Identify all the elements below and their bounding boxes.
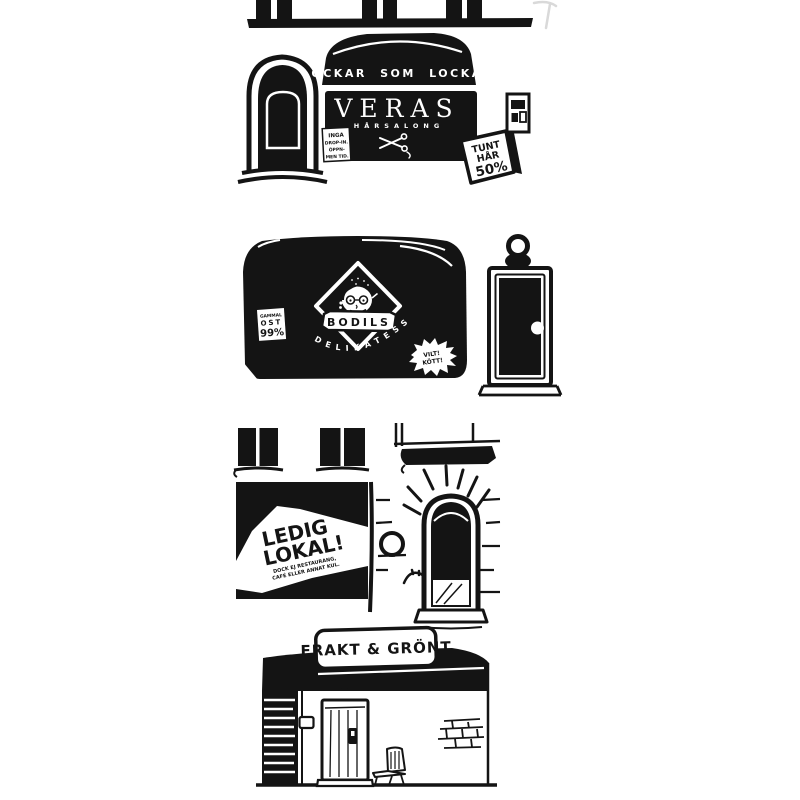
upper-window <box>234 428 283 477</box>
storefronts-illustration: LOCKAR SOM LOCKAR VERAS HÅRSALONG INGA D… <box>0 0 800 800</box>
chair <box>373 748 405 786</box>
door-lamp-icon <box>509 237 528 256</box>
price-line: 99% <box>260 327 285 340</box>
deli-storefront: BODILS DELIKATESS GAMMAL OST 99% VILT! K… <box>243 236 561 395</box>
freight-storefront: FRAKT & GRÖNT <box>256 627 497 786</box>
deli-name: BODILS <box>327 316 391 329</box>
upper-floor-pillars <box>247 0 556 28</box>
price-line: OST <box>260 318 282 327</box>
salon-window: VERAS HÅRSALONG INGA DROP-IN. ÖPPN- MEN … <box>322 91 477 162</box>
keypad-box <box>300 717 314 728</box>
sandwich-board: TUNT HÅR 50% <box>461 131 522 183</box>
sticker-line: DROP-IN. <box>325 139 349 146</box>
upper-window <box>316 428 369 470</box>
price-sticker: GAMMAL OST 99% <box>257 308 286 341</box>
plank-door <box>317 700 373 786</box>
vacant-door <box>415 496 487 629</box>
brick-detail <box>438 719 484 748</box>
salon-subtitle: HÅRSALONG <box>354 121 444 130</box>
hair-salon-storefront: LOCKAR SOM LOCKAR VERAS HÅRSALONG INGA D… <box>238 33 529 183</box>
sticker-line: INGA <box>328 133 344 140</box>
vacant-window: LEDIG LOKAL! DOCK EJ RESTAURANG, CAFÉ EL… <box>236 482 368 599</box>
freight-sign-text: FRAKT & GRÖNT <box>300 637 452 660</box>
salon-window-sticker: INGA DROP-IN. ÖPPN- MEN TID. <box>322 127 351 161</box>
salon-name: VERAS <box>333 94 459 123</box>
sticker-line: MEN TID. <box>325 153 349 160</box>
vacant-storefront: LEDIG LOKAL! DOCK EJ RESTAURANG, CAFÉ EL… <box>234 423 500 629</box>
salon-awning: LOCKAR SOM LOCKAR <box>302 33 493 85</box>
illustration-svg: LOCKAR SOM LOCKAR VERAS HÅRSALONG INGA D… <box>0 0 800 800</box>
intercom-box <box>507 94 529 132</box>
deli-door <box>479 237 561 396</box>
roller-shutter <box>262 691 302 785</box>
wall-lamp-globe-icon <box>381 533 403 555</box>
shop-sign: FRAKT & GRÖNT <box>300 627 452 669</box>
facade-divider <box>370 482 372 612</box>
sketch-mark <box>534 2 556 28</box>
awning-text: LOCKAR SOM LOCKAR <box>302 67 493 80</box>
door-knob <box>531 322 544 335</box>
